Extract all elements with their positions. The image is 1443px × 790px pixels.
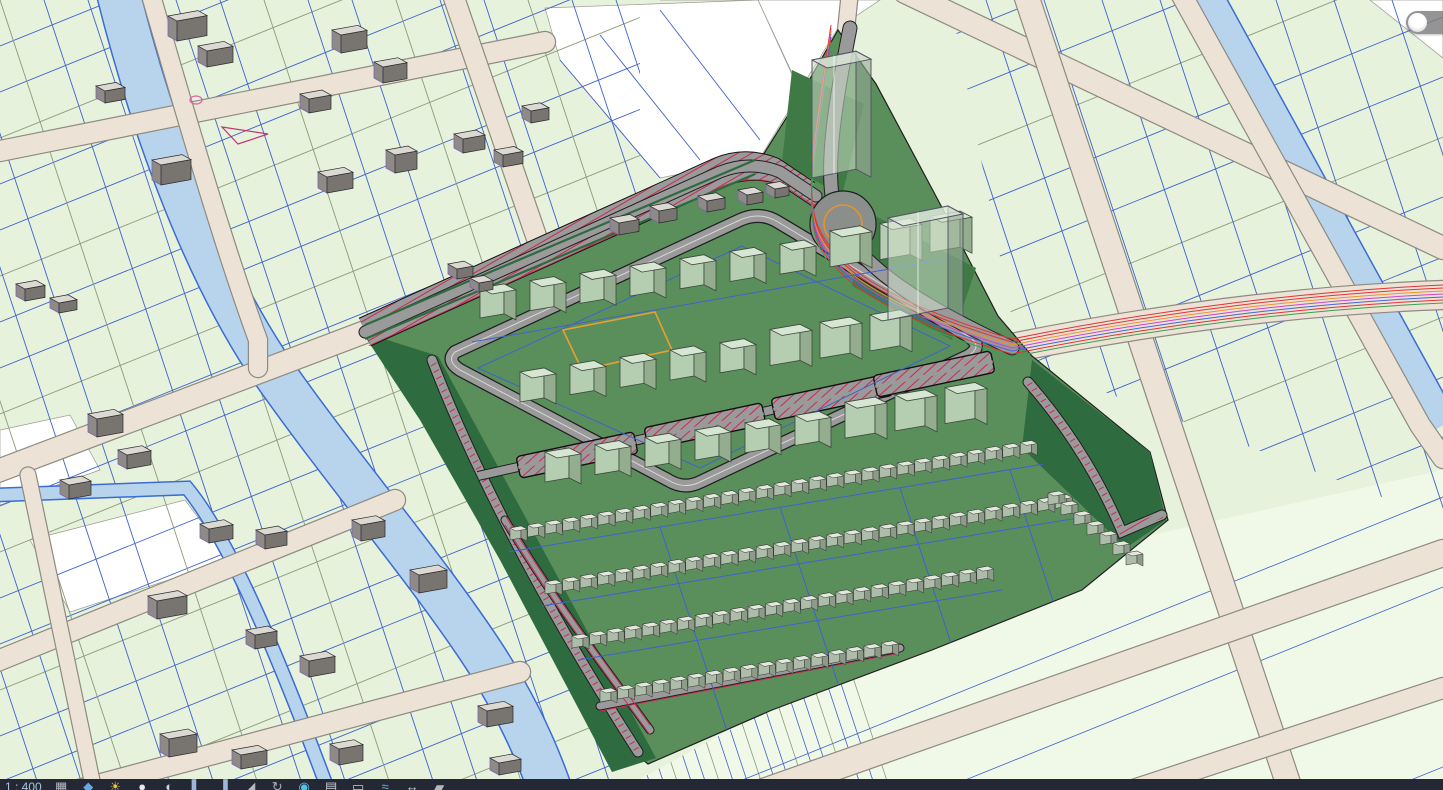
sphere-icon[interactable]: ● [129,779,156,790]
existing-building [478,701,513,727]
existing-building [300,90,331,113]
rotate-icon[interactable]: ↻ [264,779,291,790]
application-window: 1 : 400 ▦◆☀●◐▌▐◢↻◉▤▭≈↔▰ [0,0,1443,790]
existing-building [160,729,197,757]
tower-block [888,206,963,320]
map-viewport[interactable] [0,0,1443,790]
existing-building [352,516,385,541]
apartment-block [795,411,831,447]
status-toolbar: 1 : 400 ▦◆☀●◐▌▐◢↻◉▤▭≈↔▰ [0,779,1443,790]
globe-icon[interactable]: ◉ [291,779,318,790]
lamp-post-icon[interactable]: ▐ [210,779,237,790]
existing-building [50,295,77,313]
existing-building [410,565,447,593]
existing-building [148,591,187,619]
view-toggle[interactable] [1406,11,1443,34]
existing-building [698,193,725,212]
pencil-icon[interactable]: ▰ [426,779,453,790]
roof-tool-icon[interactable]: ◢ [237,779,264,790]
existing-building [448,261,473,279]
street-lamp-icon[interactable]: ▌ [183,779,210,790]
apartment-block [670,346,706,382]
existing-building [610,214,639,235]
apartment-block [945,383,987,425]
tool-icons: ▦◆☀●◐▌▐◢↻◉▤▭≈↔▰ [48,779,453,790]
water-icon[interactable]: ≈ [372,779,399,790]
existing-building [650,203,677,223]
existing-building [318,167,353,193]
existing-building [490,754,521,775]
apartment-block [830,226,872,268]
apartment-block [845,397,887,439]
watering-can-icon[interactable]: ◐ [156,779,183,790]
apartment-block [545,448,581,484]
chart-icon[interactable]: ▤ [318,779,345,790]
apartment-block [530,277,566,313]
apartment-block [680,255,716,291]
apartment-block [630,262,666,298]
existing-building [200,520,233,543]
existing-building [256,526,287,549]
apartment-block [570,361,606,397]
apartment-block [645,433,681,469]
existing-building [88,409,123,437]
measure-icon[interactable]: ↔ [399,779,426,790]
apartment-block [695,426,731,462]
scale-label: 1 : 400 [0,779,48,790]
layers-icon[interactable]: ◆ [75,779,102,790]
existing-building [332,25,367,53]
existing-building [60,476,91,499]
toggle-knob-icon [1408,13,1427,32]
existing-building [96,82,125,103]
hatch-grid-icon[interactable]: ▦ [48,779,75,790]
existing-building [300,651,335,677]
apartment-block [780,240,816,276]
vehicle-icon[interactable]: ▭ [345,779,372,790]
sun-light-icon[interactable]: ☀ [102,779,129,790]
existing-building [118,446,151,469]
tower-block [812,51,871,178]
apartment-block [770,324,812,366]
existing-building [16,280,45,301]
apartment-block [520,368,556,404]
existing-building [168,11,207,41]
apartment-block [820,317,862,359]
existing-building [232,745,267,769]
apartment-block [720,339,756,375]
existing-building [152,155,191,185]
existing-building [330,740,363,765]
existing-building [454,130,485,153]
existing-building [522,103,549,123]
existing-building [386,146,417,173]
apartment-block [745,419,781,455]
apartment-block [580,269,616,305]
apartment-block [895,390,937,432]
existing-building [738,187,763,205]
existing-building [198,41,233,67]
apartment-block [595,441,631,477]
apartment-block [620,353,656,389]
existing-building [246,626,277,649]
existing-building [374,58,407,83]
apartment-block [730,247,766,283]
existing-building [494,146,523,167]
